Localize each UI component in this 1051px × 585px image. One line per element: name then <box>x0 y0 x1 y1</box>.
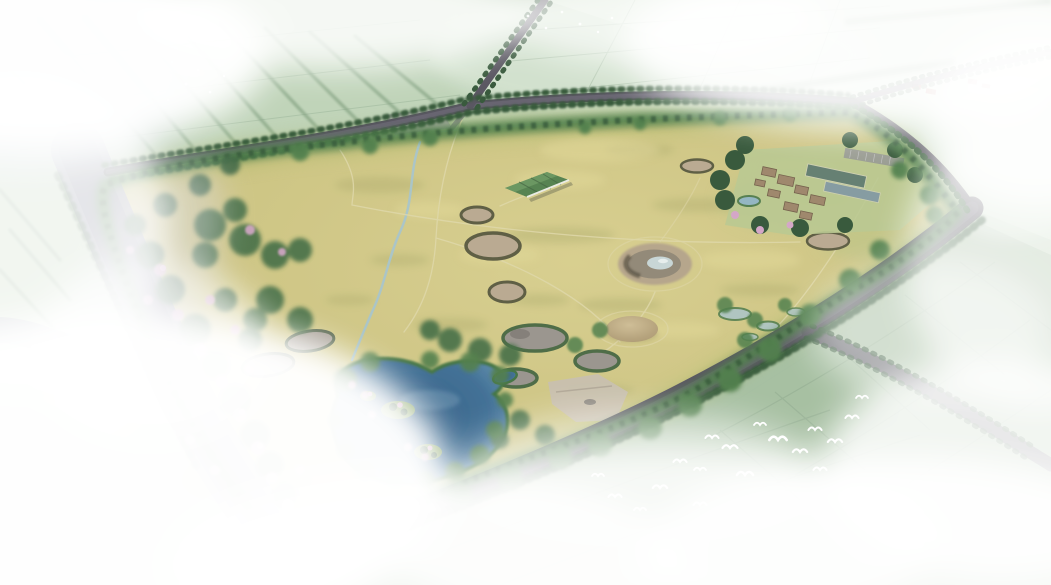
mist <box>0 0 1051 585</box>
aerial-rendering: Aerial master-plan rendering of a wetlan… <box>0 0 1051 585</box>
scene-canvas: Aerial master-plan rendering of a wetlan… <box>0 0 1051 585</box>
haze-veil <box>0 0 1051 585</box>
